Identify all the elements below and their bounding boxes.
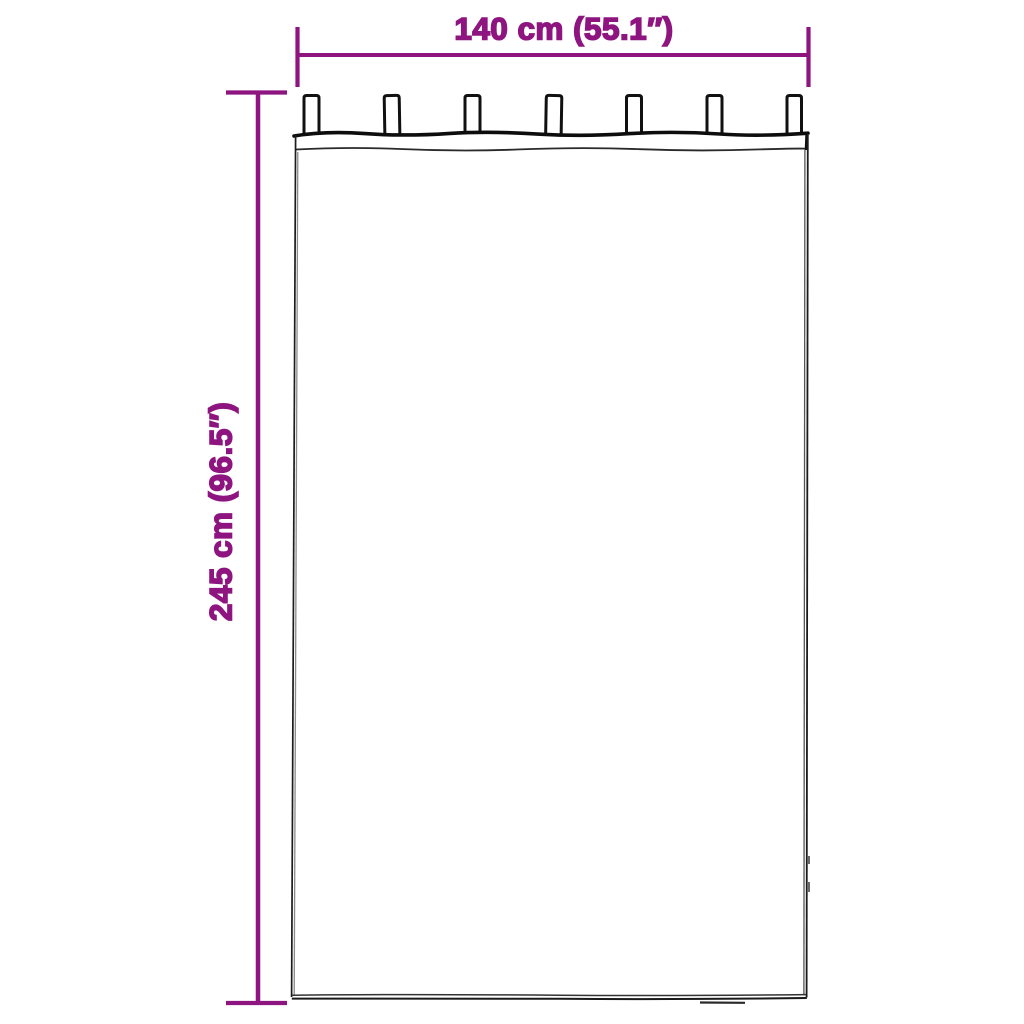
svg-text:245 cm (96.5″): 245 cm (96.5″): [203, 402, 239, 621]
svg-text:140 cm (55.1″): 140 cm (55.1″): [454, 11, 673, 47]
